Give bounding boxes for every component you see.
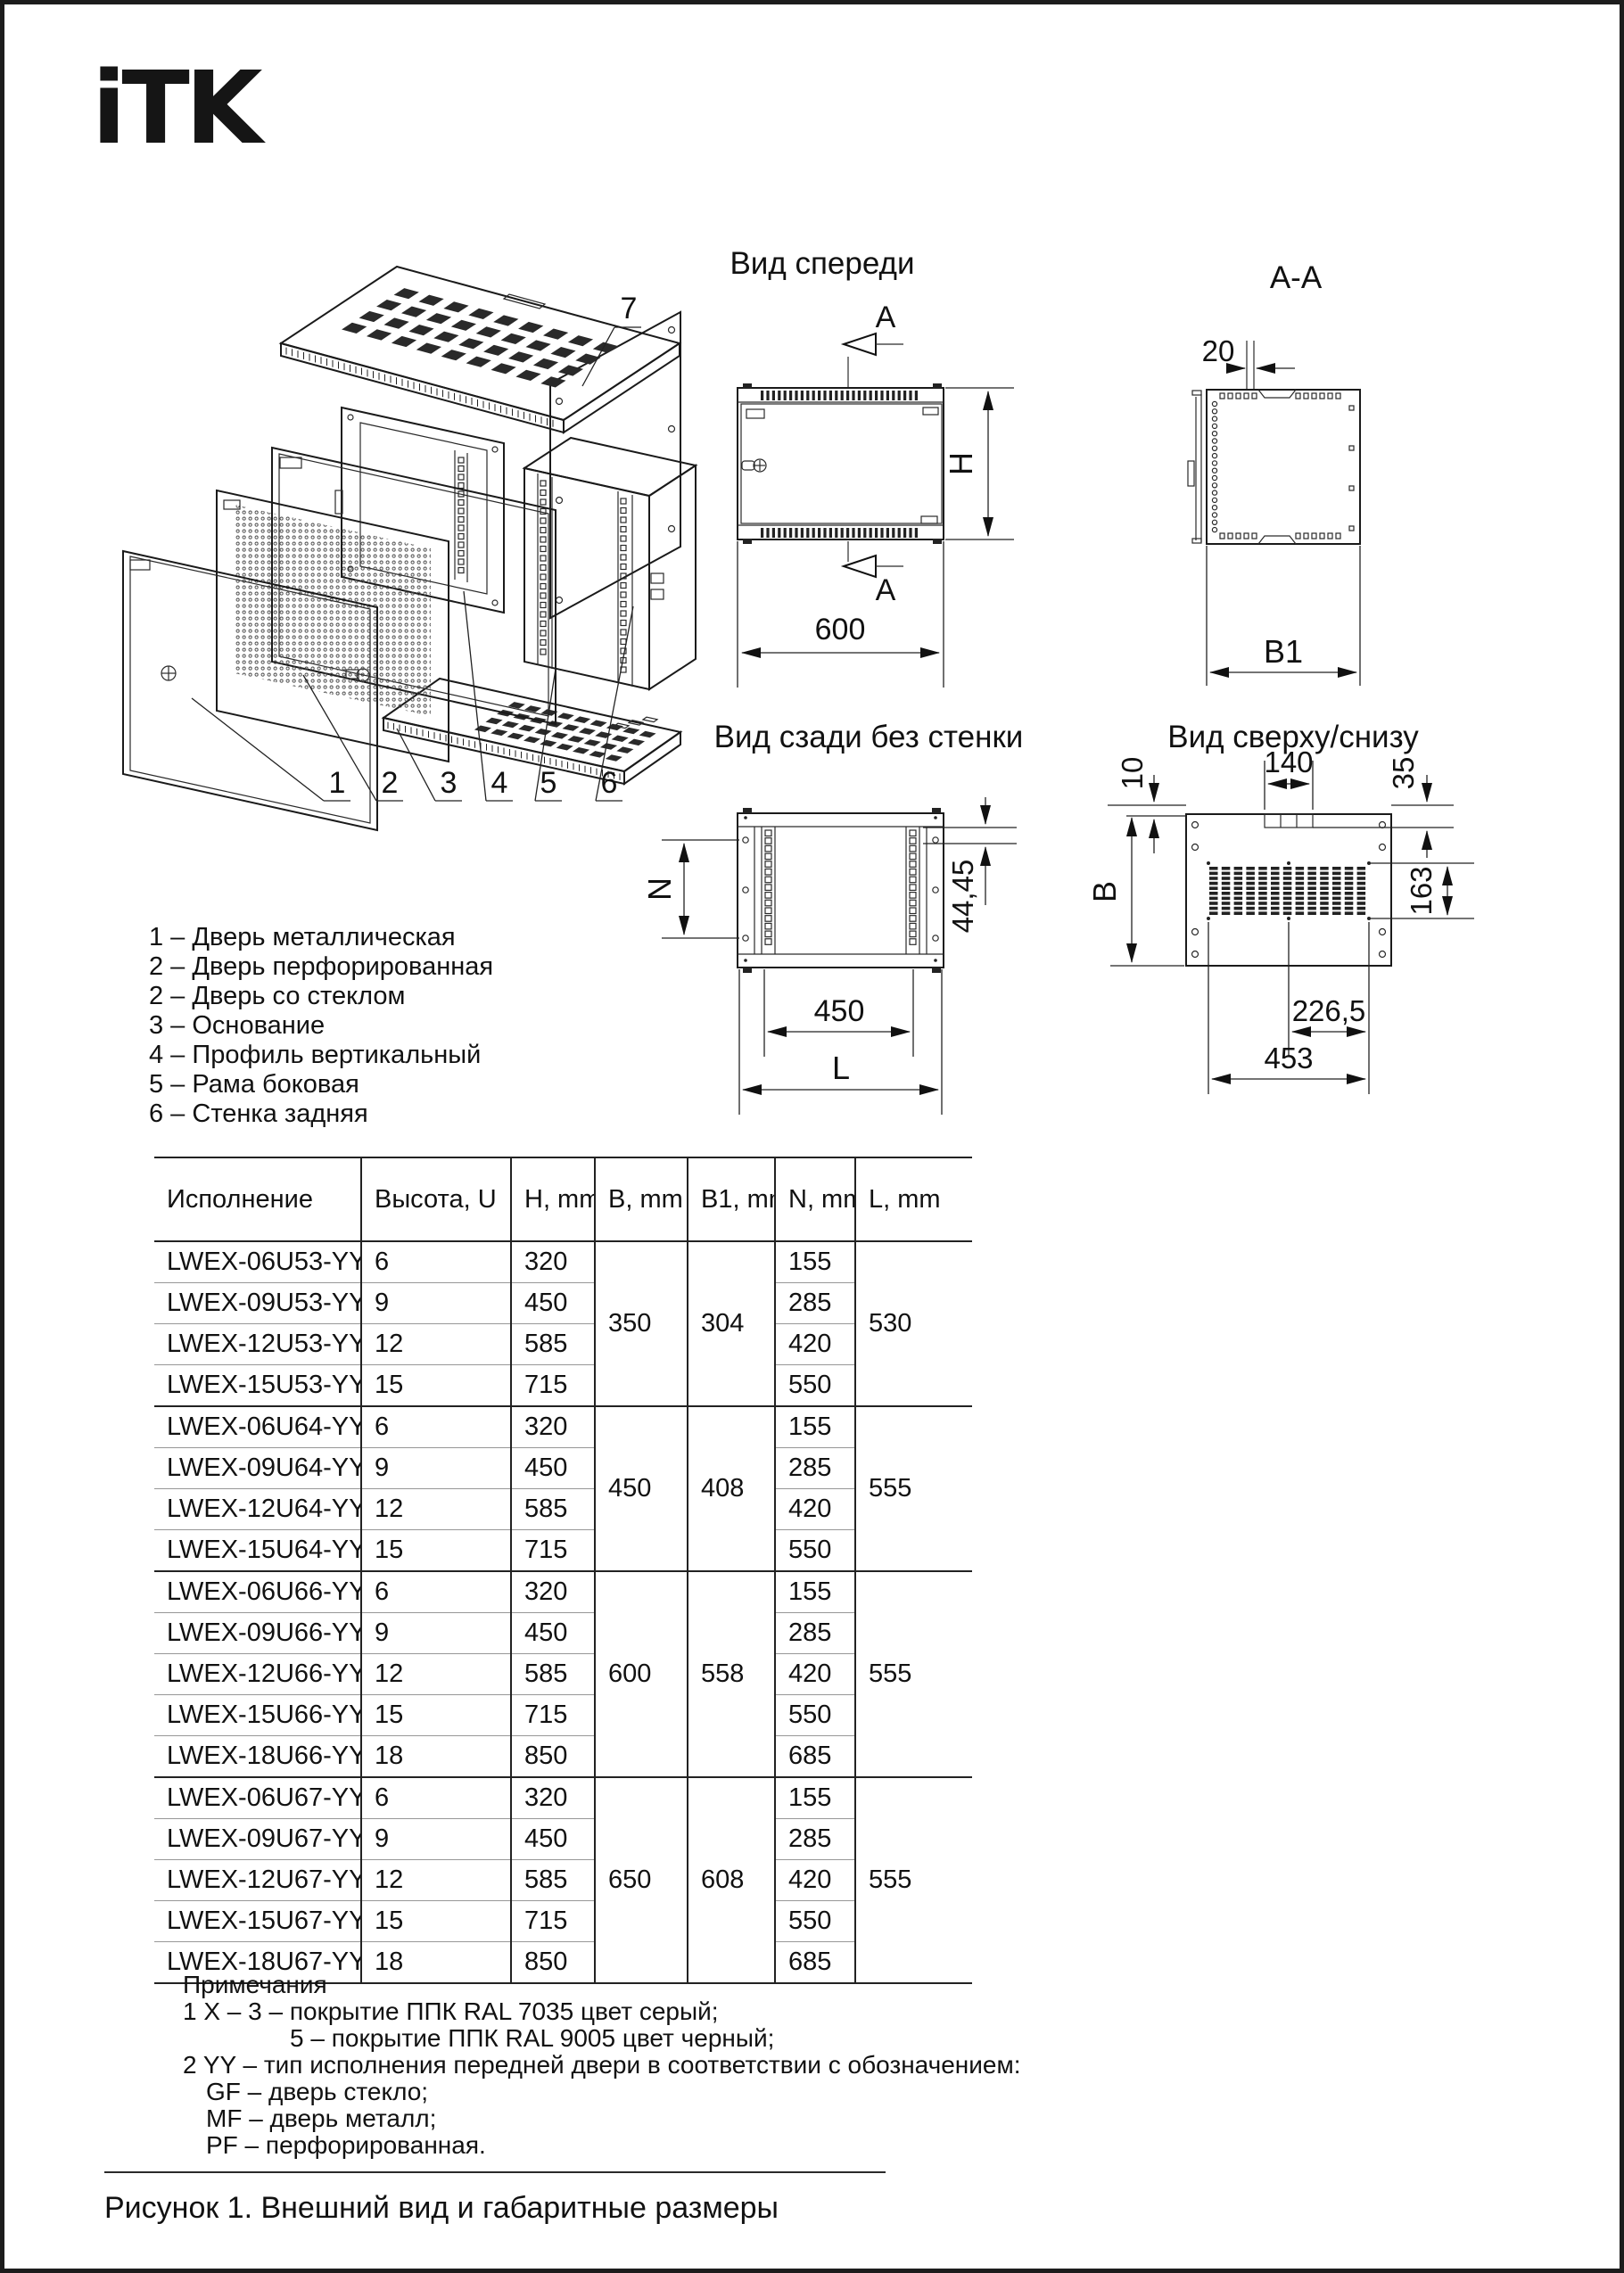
- table-cell: 9: [361, 1819, 511, 1860]
- table-cell: 715: [511, 1901, 595, 1942]
- section-aa-view: A-A 20 B1: [1188, 260, 1360, 686]
- table-cell: 450: [511, 1448, 595, 1489]
- notes-block: Примечания 1 Х – 3 – покрытие ППК RAL 70…: [183, 1972, 1021, 2159]
- table-cell: 585: [511, 1489, 595, 1530]
- table-row: LWEX-12U64-YY12585420: [154, 1489, 972, 1530]
- table-cell: 555: [855, 1571, 972, 1777]
- dim-top-b-label: B: [1086, 881, 1123, 902]
- rear-view-title: Вид сзади без стенки: [714, 720, 1024, 754]
- table-cell: 320: [511, 1241, 595, 1283]
- table-header-cell: Высота, U: [361, 1157, 511, 1241]
- table-row: LWEX-06U67-YY6320650608155555: [154, 1777, 972, 1819]
- table-cell: 550: [775, 1695, 855, 1736]
- table-cell: 6: [361, 1406, 511, 1448]
- table-cell: LWEX-15U66-YY: [154, 1695, 361, 1736]
- dim-rear-l-label: L: [832, 1050, 850, 1086]
- table-cell: 608: [688, 1777, 775, 1983]
- dim-rear-n-label: N: [641, 877, 678, 901]
- parts-legend: 1 – Дверь металлическая 2 – Дверь перфор…: [149, 923, 493, 1129]
- table-row: LWEX-09U67-YY9450285: [154, 1819, 972, 1860]
- legend-item: 1 – Дверь металлическая: [149, 923, 493, 952]
- dim-front-height-label: H: [943, 452, 979, 475]
- notes-line: 2 YY – тип исполнения передней двери в с…: [183, 2052, 1021, 2079]
- table-row: LWEX-09U66-YY9450285: [154, 1613, 972, 1654]
- table-row: LWEX-09U53-YY9450285: [154, 1283, 972, 1324]
- legend-item: 3 – Основание: [149, 1011, 493, 1041]
- table-cell: 6: [361, 1241, 511, 1283]
- datasheet-page: iTK: [0, 0, 1624, 2273]
- topbottom-view: Вид сверху/снизу 10 35 140 B: [1086, 720, 1474, 1094]
- dim-front-width-label: 600: [815, 613, 866, 646]
- section-label-top: A: [876, 301, 896, 334]
- table-row: LWEX-12U53-YY12585420: [154, 1324, 972, 1365]
- table-header-cell: B1, mm: [688, 1157, 775, 1241]
- table-cell: LWEX-12U64-YY: [154, 1489, 361, 1530]
- table-cell: 715: [511, 1365, 595, 1407]
- table-cell: 12: [361, 1324, 511, 1365]
- table-cell: 685: [775, 1736, 855, 1778]
- table-cell: 715: [511, 1530, 595, 1572]
- table-row: LWEX-12U67-YY12585420: [154, 1860, 972, 1901]
- rear-view: Вид сзади без стенки N 44,45: [641, 720, 1023, 1115]
- table-header-row: ИсполнениеВысота, UH, mmB, mmB1, mmN, mm…: [154, 1157, 972, 1241]
- part-number-4: 4: [491, 766, 508, 800]
- table-row: LWEX-12U66-YY12585420: [154, 1654, 972, 1695]
- table-cell: 9: [361, 1448, 511, 1489]
- table-header-cell: Исполнение: [154, 1157, 361, 1241]
- dim-top-453-label: 453: [1264, 1042, 1313, 1075]
- notes-line: 1 Х – 3 – покрытие ППК RAL 7035 цвет сер…: [183, 1998, 1021, 2025]
- table-row: LWEX-15U66-YY15715550: [154, 1695, 972, 1736]
- table-cell: 285: [775, 1283, 855, 1324]
- table-cell: 15: [361, 1695, 511, 1736]
- table-cell: 555: [855, 1777, 972, 1983]
- table-cell: 555: [855, 1406, 972, 1571]
- table-cell: LWEX-09U53-YY: [154, 1283, 361, 1324]
- legend-item: 2 – Дверь со стеклом: [149, 982, 493, 1011]
- legend-item: 5 – Рама боковая: [149, 1070, 493, 1099]
- table-row: LWEX-15U64-YY15715550: [154, 1530, 972, 1572]
- table-cell: LWEX-06U53-YY: [154, 1241, 361, 1283]
- table-cell: 585: [511, 1860, 595, 1901]
- part-back-wall: [550, 312, 680, 618]
- table-cell: 6: [361, 1777, 511, 1819]
- table-cell: 585: [511, 1654, 595, 1695]
- dim-top-35-label: 35: [1387, 757, 1420, 790]
- table-row: LWEX-09U64-YY9450285: [154, 1448, 972, 1489]
- table-cell: 850: [511, 1736, 595, 1778]
- dim-aa-width-label: B1: [1264, 633, 1303, 670]
- legend-item: 4 – Профиль вертикальный: [149, 1041, 493, 1070]
- dimensions-table: ИсполнениеВысота, UH, mmB, mmB1, mmN, mm…: [154, 1157, 972, 1984]
- table-cell: LWEX-06U67-YY: [154, 1777, 361, 1819]
- table-cell: 420: [775, 1860, 855, 1901]
- dim-aa-offset-label: 20: [1202, 334, 1235, 367]
- table-cell: 450: [511, 1283, 595, 1324]
- table-cell: LWEX-09U66-YY: [154, 1613, 361, 1654]
- table-cell: 600: [595, 1571, 688, 1777]
- notes-line: GF – дверь стекло;: [206, 2079, 1021, 2105]
- table-header-cell: N, mm: [775, 1157, 855, 1241]
- dim-rear-4445-label: 44,45: [946, 860, 979, 934]
- table-cell: LWEX-12U53-YY: [154, 1324, 361, 1365]
- table-cell: LWEX-12U66-YY: [154, 1654, 361, 1695]
- part-number-1: 1: [329, 766, 346, 800]
- table-cell: 15: [361, 1530, 511, 1572]
- table-cell: 550: [775, 1901, 855, 1942]
- table-cell: 550: [775, 1365, 855, 1407]
- table-cell: 320: [511, 1777, 595, 1819]
- front-view-title: Вид спереди: [730, 246, 914, 281]
- section-aa-title: A-A: [1270, 260, 1323, 295]
- part-number-6: 6: [601, 766, 618, 800]
- table-cell: 450: [511, 1819, 595, 1860]
- table-cell: 18: [361, 1736, 511, 1778]
- table-row: LWEX-15U67-YY15715550: [154, 1901, 972, 1942]
- figure-caption: Рисунок 1. Внешний вид и габаритные разм…: [104, 2191, 779, 2226]
- table-cell: 450: [595, 1406, 688, 1571]
- table-cell: 585: [511, 1324, 595, 1365]
- table-cell: LWEX-09U64-YY: [154, 1448, 361, 1489]
- part-number-7: 7: [621, 292, 638, 325]
- part-number-2: 2: [382, 766, 399, 800]
- exploded-view: 1 2 3 4 5 6 7: [123, 267, 696, 830]
- table-cell: 12: [361, 1654, 511, 1695]
- table-cell: 155: [775, 1571, 855, 1613]
- table-cell: 408: [688, 1406, 775, 1571]
- table-cell: LWEX-15U53-YY: [154, 1365, 361, 1407]
- table-header-cell: H, mm: [511, 1157, 595, 1241]
- table-cell: 420: [775, 1654, 855, 1695]
- table-cell: 320: [511, 1571, 595, 1613]
- table-cell: LWEX-15U64-YY: [154, 1530, 361, 1572]
- legend-item: 2 – Дверь перфорированная: [149, 952, 493, 982]
- table-cell: 304: [688, 1241, 775, 1406]
- table-cell: 420: [775, 1324, 855, 1365]
- footer-divider: [104, 2171, 886, 2173]
- notes-line: MF – дверь металл;: [206, 2105, 1021, 2132]
- table-cell: 530: [855, 1241, 972, 1406]
- table-row: LWEX-15U53-YY15715550: [154, 1365, 972, 1407]
- table-cell: 12: [361, 1489, 511, 1530]
- table-row: LWEX-06U64-YY6320450408155555: [154, 1406, 972, 1448]
- table-cell: 15: [361, 1901, 511, 1942]
- table-cell: 420: [775, 1489, 855, 1530]
- part-number-3: 3: [441, 766, 458, 800]
- table-cell: 285: [775, 1448, 855, 1489]
- part-perforated-door: [217, 490, 449, 762]
- dim-rear-450-label: 450: [814, 994, 865, 1028]
- table-cell: 715: [511, 1695, 595, 1736]
- table-cell: 9: [361, 1283, 511, 1324]
- table-header-cell: B, mm: [595, 1157, 688, 1241]
- dim-top-163-label: 163: [1405, 866, 1438, 915]
- table-cell: LWEX-06U64-YY: [154, 1406, 361, 1448]
- table-row: LWEX-06U66-YY6320600558155555: [154, 1571, 972, 1613]
- table-cell: 558: [688, 1571, 775, 1777]
- dim-top-2265-label: 226,5: [1292, 994, 1366, 1027]
- table-cell: 450: [511, 1613, 595, 1654]
- table-row: LWEX-18U66-YY18850685: [154, 1736, 972, 1778]
- notes-title: Примечания: [183, 1972, 1021, 1998]
- table-cell: 155: [775, 1406, 855, 1448]
- table-cell: 155: [775, 1777, 855, 1819]
- table-cell: LWEX-09U67-YY: [154, 1819, 361, 1860]
- table-row: LWEX-06U53-YY6320350304155530: [154, 1241, 972, 1283]
- dimensions-table-wrap: ИсполнениеВысота, UH, mmB, mmB1, mmN, mm…: [154, 1157, 972, 1984]
- dim-top-140-label: 140: [1264, 745, 1313, 778]
- table-cell: 285: [775, 1613, 855, 1654]
- dim-top-10-label: 10: [1116, 757, 1149, 790]
- table-cell: LWEX-18U66-YY: [154, 1736, 361, 1778]
- table-header-cell: L, mm: [855, 1157, 972, 1241]
- part-number-5: 5: [540, 766, 557, 800]
- table-cell: 12: [361, 1860, 511, 1901]
- table-cell: 550: [775, 1530, 855, 1572]
- table-cell: 285: [775, 1819, 855, 1860]
- table-cell: 650: [595, 1777, 688, 1983]
- table-cell: LWEX-06U66-YY: [154, 1571, 361, 1613]
- table-cell: 350: [595, 1241, 688, 1406]
- table-cell: LWEX-15U67-YY: [154, 1901, 361, 1942]
- table-cell: LWEX-12U67-YY: [154, 1860, 361, 1901]
- legend-item: 6 – Стенка задняя: [149, 1099, 493, 1129]
- table-cell: 155: [775, 1241, 855, 1283]
- notes-line: 5 – покрытие ППК RAL 9005 цвет черный;: [290, 2025, 1021, 2052]
- front-view: Вид спереди A H A: [730, 246, 1014, 688]
- table-cell: 9: [361, 1613, 511, 1654]
- notes-line: PF – перфорированная.: [206, 2132, 1021, 2159]
- table-cell: 320: [511, 1406, 595, 1448]
- table-cell: 15: [361, 1365, 511, 1407]
- section-label-bottom: A: [876, 573, 896, 607]
- table-cell: 6: [361, 1571, 511, 1613]
